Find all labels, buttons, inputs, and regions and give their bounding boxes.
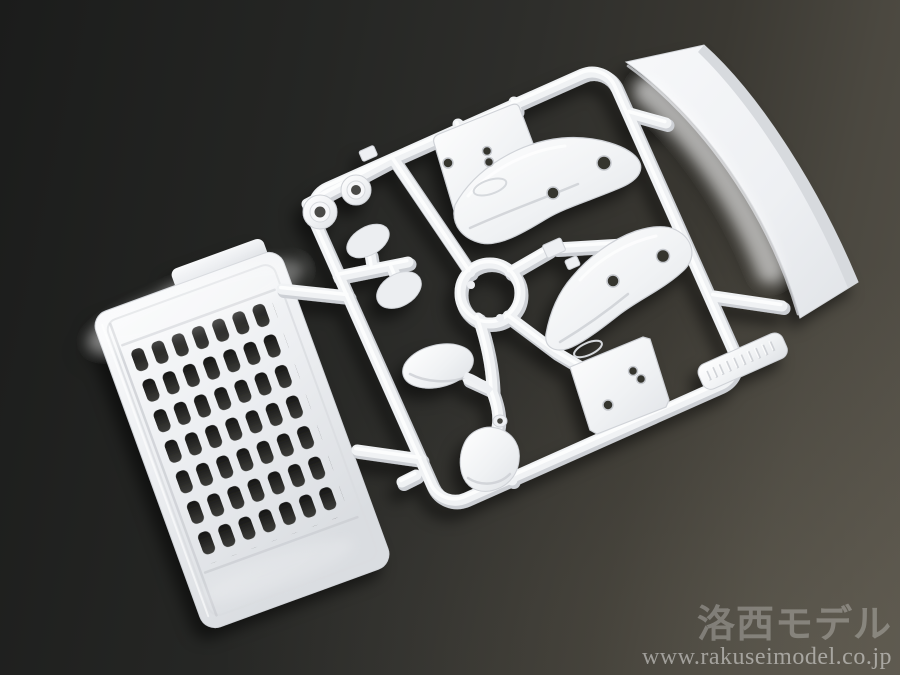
ring-nub-1: [467, 281, 475, 289]
grommet-2: [341, 175, 371, 205]
grommet-1: [303, 195, 337, 229]
ring-nub-2: [496, 314, 504, 322]
molded-tag: [695, 330, 790, 392]
photo-stage: 洛西モデル www.rakuseimodel.co.jp: [0, 0, 900, 675]
sprue-photo: [0, 0, 900, 675]
mirror-housing-lower: [460, 415, 519, 491]
front-grille-panel: [74, 227, 411, 636]
fender-upper: [434, 104, 641, 244]
